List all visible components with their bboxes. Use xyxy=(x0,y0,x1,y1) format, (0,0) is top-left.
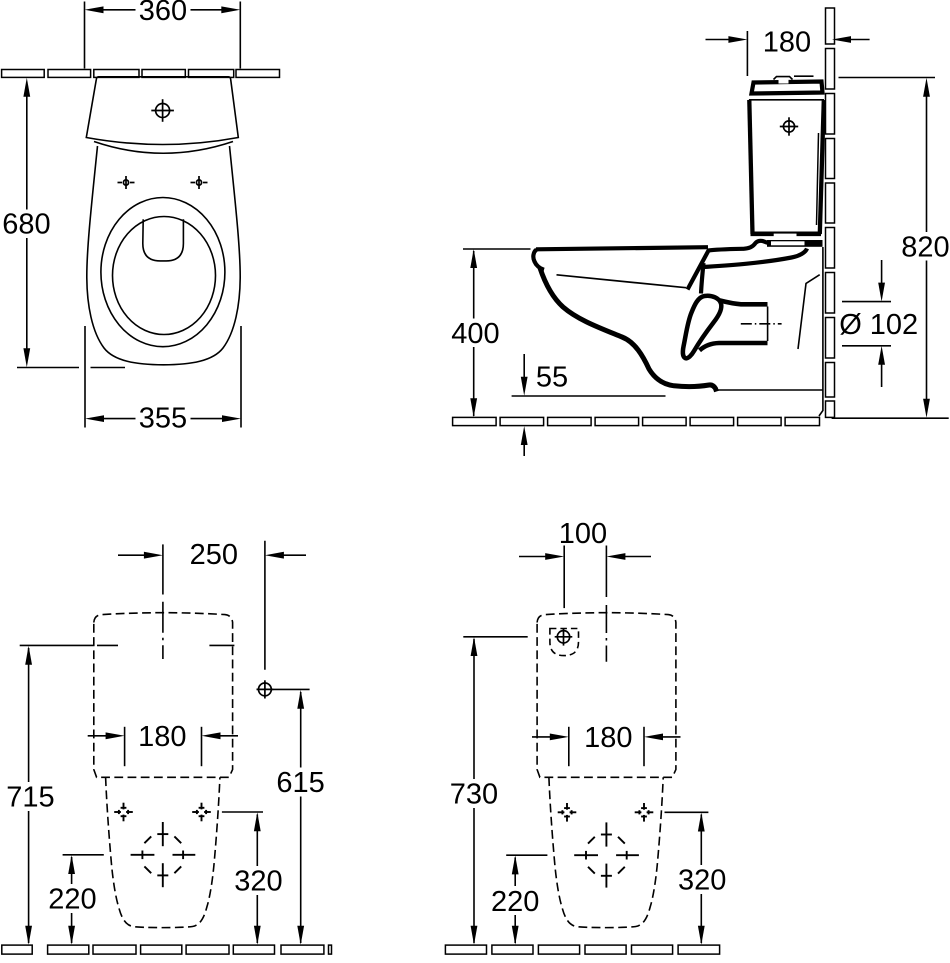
svg-text:615: 615 xyxy=(276,767,324,799)
svg-text:680: 680 xyxy=(2,209,50,241)
svg-text:320: 320 xyxy=(234,865,282,897)
svg-text:Ø 102: Ø 102 xyxy=(839,309,918,341)
svg-text:220: 220 xyxy=(48,883,96,915)
svg-text:715: 715 xyxy=(6,781,54,813)
svg-text:100: 100 xyxy=(559,518,607,550)
svg-text:250: 250 xyxy=(190,539,238,571)
svg-text:180: 180 xyxy=(138,721,186,753)
svg-text:55: 55 xyxy=(536,361,568,393)
svg-text:730: 730 xyxy=(450,779,498,811)
svg-text:355: 355 xyxy=(139,403,187,435)
svg-text:400: 400 xyxy=(451,318,499,350)
svg-text:360: 360 xyxy=(139,0,187,27)
svg-text:220: 220 xyxy=(491,886,539,918)
svg-text:180: 180 xyxy=(584,722,632,754)
svg-text:820: 820 xyxy=(901,231,949,263)
svg-text:320: 320 xyxy=(678,864,726,896)
svg-text:180: 180 xyxy=(763,27,811,59)
